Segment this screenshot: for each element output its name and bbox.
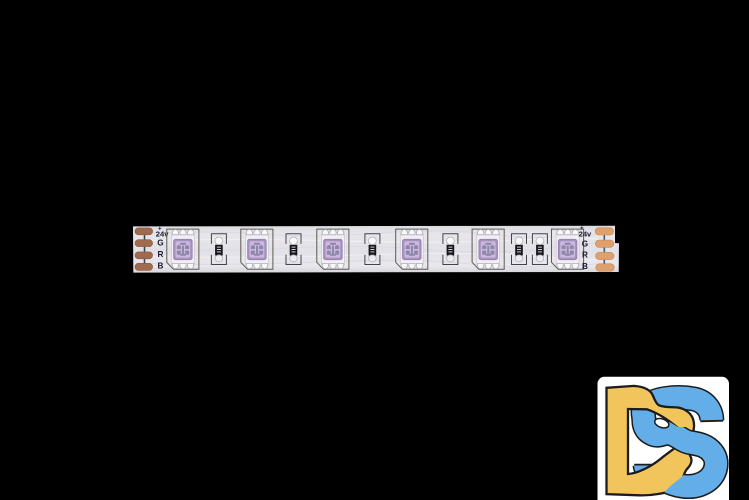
svg-text:B: B (158, 262, 164, 271)
svg-text:R: R (158, 250, 164, 259)
svg-text:R: R (582, 251, 588, 260)
svg-text:B: B (582, 262, 588, 271)
svg-text:G: G (157, 238, 163, 247)
svg-text:24v: 24v (579, 230, 592, 239)
svg-text:G: G (582, 240, 588, 249)
